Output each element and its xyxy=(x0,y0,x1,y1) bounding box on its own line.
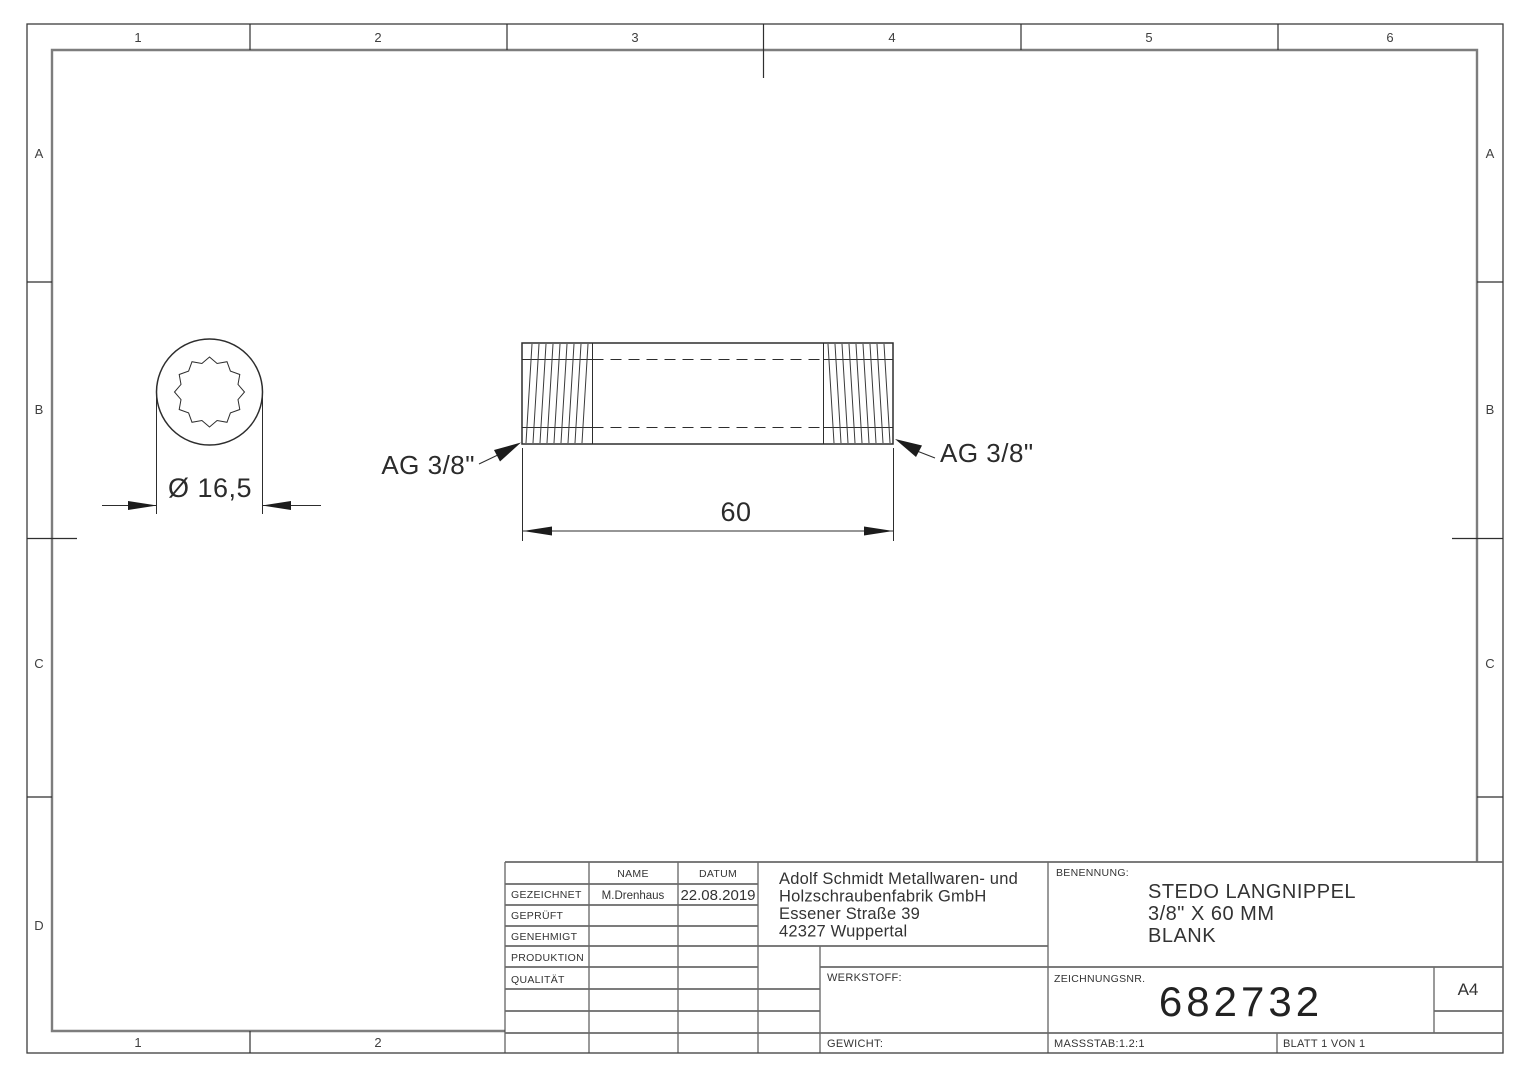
hidden-bore-lines xyxy=(593,360,824,428)
company-line: 42327 Wuppertal xyxy=(779,923,907,941)
part-title-line2: 3/8" X 60 MM xyxy=(1148,903,1274,925)
leader-arrow-left xyxy=(494,443,521,462)
zone-label-right: C xyxy=(1485,656,1494,671)
col-header-datum: DATUM xyxy=(699,868,737,880)
zone-label-left: A xyxy=(35,146,44,161)
thread-profile-polygon xyxy=(175,357,245,427)
thread-end-lines xyxy=(593,343,824,444)
diameter-dimension-text: Ø 16,5 xyxy=(168,473,252,503)
thread-label-left: AG 3/8" xyxy=(381,450,475,480)
row-label-geprueft: GEPRÜFT xyxy=(511,910,564,922)
zone-label-left: B xyxy=(35,402,44,417)
zone-label-bottom: 1 xyxy=(134,1035,141,1050)
part-title-line1: STEDO LANGNIPPEL xyxy=(1148,881,1356,903)
end-view: Ø 16,5 xyxy=(102,339,321,514)
zone-label-top: 4 xyxy=(888,30,895,45)
zone-label-top: 2 xyxy=(374,30,381,45)
zone-label-bottom: 2 xyxy=(374,1035,381,1050)
leader-arrow-right xyxy=(895,439,922,457)
gezeichnet-datum: 22.08.2019 xyxy=(680,887,755,904)
gezeichnet-name: M.Drenhaus xyxy=(602,890,665,902)
outer-diameter-circle xyxy=(157,339,263,445)
company-line: Adolf Schmidt Metallwaren- und xyxy=(779,870,1018,888)
dim-arrow-60-left xyxy=(523,527,552,536)
leader-line-right xyxy=(917,451,935,458)
company-line: Essener Straße 39 xyxy=(779,905,920,923)
part-title-line3: BLANK xyxy=(1148,925,1216,947)
row-label-genehmigt: GENEHMIGT xyxy=(511,931,578,943)
thread-label-right: AG 3/8" xyxy=(940,438,1034,468)
dim-arrow-right xyxy=(262,501,291,510)
benennung-label: BENENNUNG: xyxy=(1056,867,1129,879)
zone-label-top: 1 xyxy=(134,30,141,45)
drawing-number: 682732 xyxy=(1159,978,1323,1025)
zone-ticks-right xyxy=(1477,282,1503,797)
side-view: AG 3/8" AG 3/8" 60 xyxy=(381,343,1033,541)
dim-arrow-left xyxy=(128,501,157,510)
thread-hatch-left xyxy=(526,344,588,443)
sheet-format: A4 xyxy=(1458,980,1479,999)
werkstoff-label: WERKSTOFF: xyxy=(827,972,902,984)
zeichnungsnr-label: ZEICHNUNGSNR. xyxy=(1054,973,1145,985)
zone-label-right: A xyxy=(1486,146,1495,161)
length-dimension-text: 60 xyxy=(720,497,751,527)
blatt-label: BLATT 1 VON 1 xyxy=(1283,1038,1365,1050)
zone-label-left: D xyxy=(34,918,43,933)
zone-label-top: 5 xyxy=(1145,30,1152,45)
zone-label-left: C xyxy=(34,656,43,671)
zone-label-right: B xyxy=(1486,402,1495,417)
zone-label-top: 3 xyxy=(631,30,638,45)
massstab-label: MASSSTAB:1.2:1 xyxy=(1054,1038,1145,1050)
dim-arrow-60-right xyxy=(864,527,893,536)
row-label-gezeichnet: GEZEICHNET xyxy=(511,889,582,901)
col-header-name: NAME xyxy=(617,868,649,880)
title-block: NAME DATUM GEZEICHNET M.Drenhaus 22.08.2… xyxy=(505,862,1503,1053)
row-label-qualitaet: QUALITÄT xyxy=(511,974,565,986)
extension-lines-60 xyxy=(523,448,894,541)
row-label-produktion: PRODUKTION xyxy=(511,952,584,964)
zone-label-top: 6 xyxy=(1386,30,1393,45)
company-line: Holzschraubenfabrik GmbH xyxy=(779,888,986,906)
thread-hatch-right xyxy=(828,344,890,443)
zone-ticks-left xyxy=(27,282,52,797)
gewicht-label: GEWICHT: xyxy=(827,1038,883,1050)
